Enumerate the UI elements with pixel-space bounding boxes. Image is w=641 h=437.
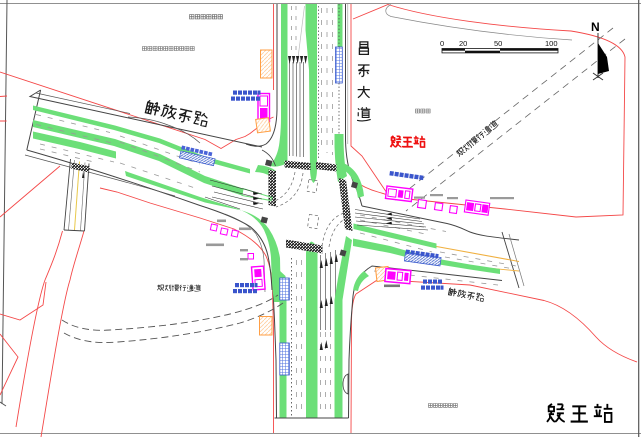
svg-text:N: N	[591, 20, 600, 34]
svg-text:20: 20	[459, 39, 467, 48]
svg-text:0: 0	[440, 39, 444, 48]
svg-text:50: 50	[494, 39, 502, 48]
svg-text:100: 100	[545, 39, 558, 48]
